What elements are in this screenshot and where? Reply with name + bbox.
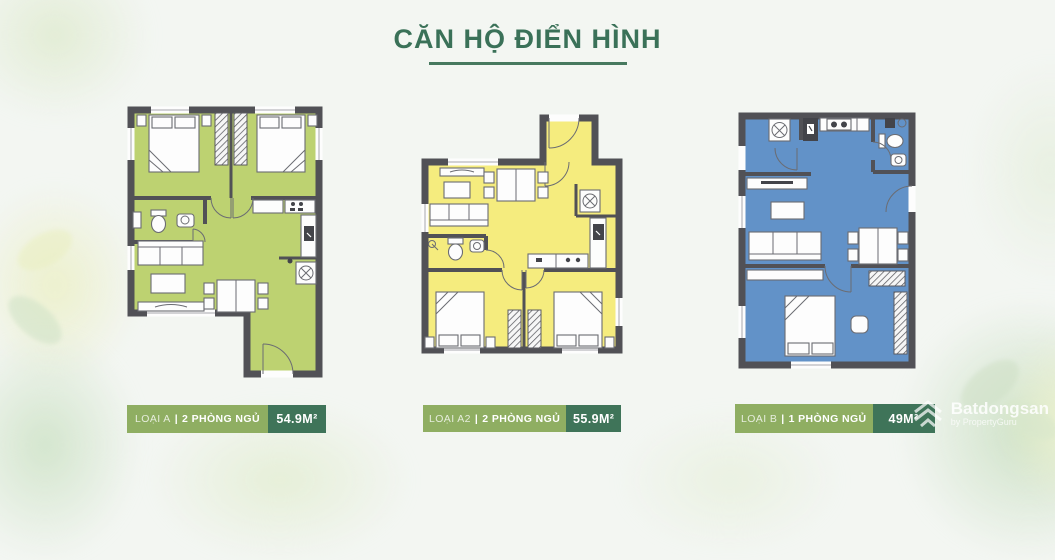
plan-a2-area-badge: 55.9M² [566, 405, 621, 432]
leaf-decoration [1000, 330, 1055, 510]
sofa [138, 241, 203, 265]
header: CĂN HỘ ĐIỂN HÌNH [0, 24, 1055, 65]
plan-b-area-badge: 49M² [873, 404, 935, 433]
stool [851, 316, 868, 333]
plan-a-label: LOẠI A | 2 PHÒNG NGỦ 54.9M² [127, 405, 326, 433]
coffee-table [771, 202, 804, 219]
leaf-decoration [0, 185, 140, 385]
watermark-brand: Batdongsan [951, 400, 1049, 417]
floor-plan-a-drawing [127, 100, 327, 380]
kitchen [820, 118, 869, 131]
washing-machine [769, 119, 790, 141]
leaf-decoration [0, 330, 140, 560]
tv-console [747, 178, 807, 189]
plan-b-type-label: LOẠI B | 1 PHÒNG NGỦ [735, 404, 873, 433]
coffee-table [151, 274, 185, 293]
floor-plan-a2-card [418, 112, 628, 367]
washing-machine [580, 190, 600, 212]
plan-b-label: LOẠI B | 1 PHÒNG NGỦ 49M² [735, 404, 927, 433]
tv-console [440, 168, 484, 176]
sofa [430, 204, 488, 226]
bed [425, 292, 495, 348]
bed [785, 296, 835, 356]
leaf-illustration [5, 215, 95, 365]
floor-plan-a-card [127, 100, 327, 380]
leaf-illustration [950, 340, 1055, 460]
plan-a-type-label: LOẠI A | 2 PHÒNG NGỦ [127, 405, 268, 433]
page-title: CĂN HỘ ĐIỂN HÌNH [0, 24, 1055, 55]
floor-plan-b-drawing [733, 110, 918, 375]
watermark-byline: by PropertyGuru [951, 417, 1049, 428]
fridge [803, 118, 818, 141]
floor-plan-a2-drawing [418, 112, 628, 367]
coffee-table [444, 182, 470, 198]
tv-console [138, 302, 204, 311]
leaf-decoration [970, 60, 1055, 280]
sofa [749, 232, 821, 260]
plan-a2-label: LOẠI A2 | 2 PHÒNG NGỦ 55.9M² [423, 405, 620, 432]
floor-plan-b-card [733, 110, 918, 375]
dresser [747, 270, 823, 280]
plan-a-area-badge: 54.9M² [268, 405, 326, 433]
plan-a2-type-label: LOẠI A2 | 2 PHÒNG NGỦ [423, 405, 566, 432]
title-underline [429, 62, 627, 65]
